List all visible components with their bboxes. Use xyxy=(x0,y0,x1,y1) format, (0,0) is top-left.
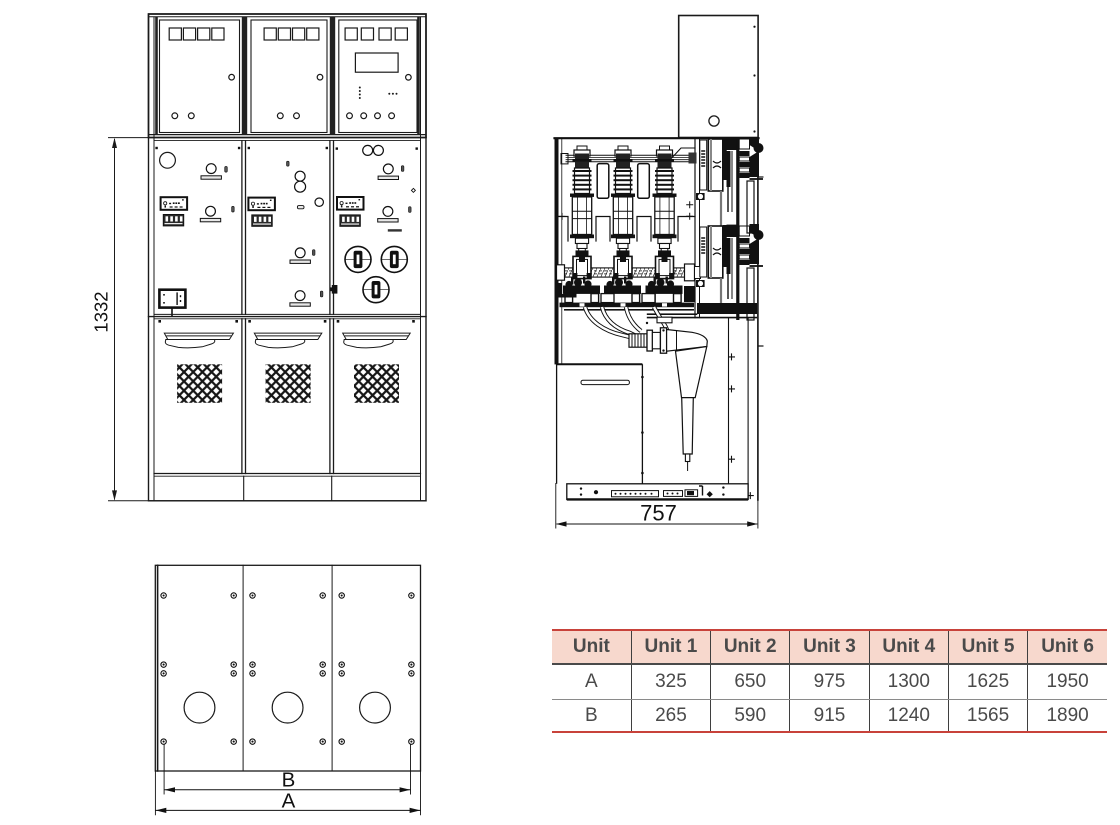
svg-text:A: A xyxy=(282,790,296,813)
svg-text:B: B xyxy=(282,769,296,792)
svg-text:1332: 1332 xyxy=(91,291,112,332)
svg-text:757: 757 xyxy=(640,501,677,526)
